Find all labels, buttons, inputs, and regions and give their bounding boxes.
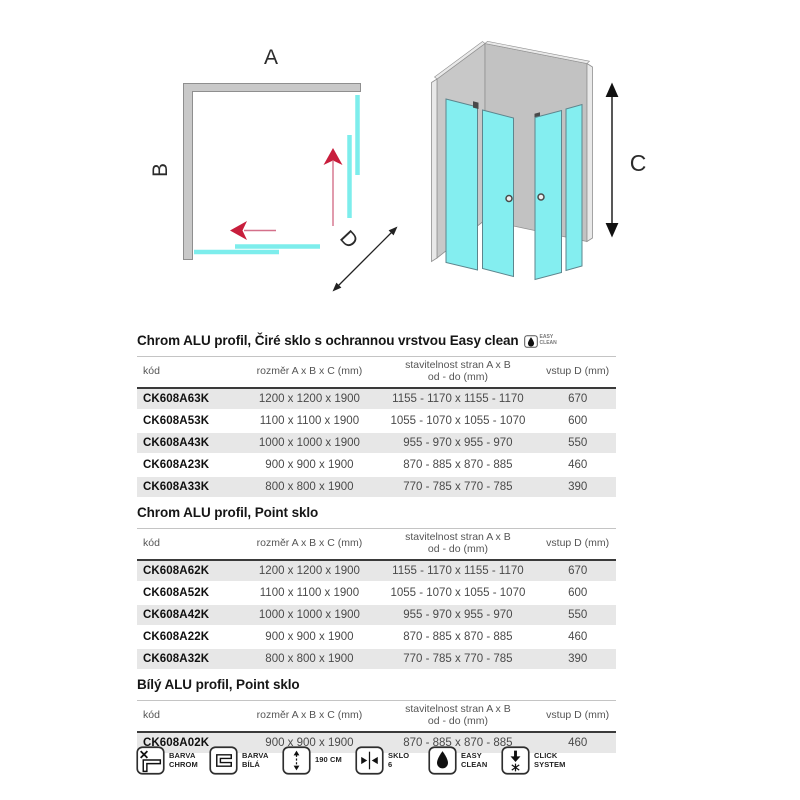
feature-easy-clean: EASYCLEAN (428, 746, 491, 775)
product-section-chrom-cire: Chrom ALU profil, Čiré sklo s ochrannou … (137, 333, 616, 499)
cell-kod: CK608A32K (137, 648, 242, 670)
cell-vstup: 460 (539, 626, 616, 648)
column-header-vstup: vstup D (mm) (539, 529, 616, 560)
cell-stavitelnost: 770 - 785 x 770 - 785 (376, 476, 539, 498)
cell-rozmer: 1200 x 1200 x 1900 (242, 560, 376, 582)
cell-rozmer: 800 x 800 x 1900 (242, 476, 376, 498)
easy-clean-badge-label: EASYCLEAN (540, 335, 557, 347)
feature-label: BARVABÍLÁ (242, 752, 272, 769)
cell-stavitelnost: 770 - 785 x 770 - 785 (376, 648, 539, 670)
table-row: CK608A32K800 x 800 x 1900770 - 785 x 770… (137, 648, 616, 670)
door-slide-arrow-up (324, 148, 343, 226)
cell-rozmer: 800 x 800 x 1900 (242, 648, 376, 670)
cell-vstup: 600 (539, 582, 616, 604)
product-section-chrom-point: Chrom ALU profil, Point sklo kódrozměr A… (137, 505, 616, 671)
cell-vstup: 460 (539, 454, 616, 476)
dim-label-d: D (335, 226, 362, 253)
cell-stavitelnost: 1055 - 1070 x 1055 - 1070 (376, 582, 539, 604)
barva-chrom-icon (136, 746, 165, 775)
cell-kod: CK608A33K (137, 476, 242, 498)
cell-vstup: 390 (539, 648, 616, 670)
dim-label-a: A (264, 46, 278, 69)
table-row: CK608A23K900 x 900 x 1900870 - 885 x 870… (137, 454, 616, 476)
column-header-stavitelnost: stavitelnost stran A x Bod - do (mm) (376, 529, 539, 560)
section-title-text: Chrom ALU profil, Point sklo (137, 505, 318, 521)
cell-vstup: 670 (539, 560, 616, 582)
cell-kod: CK608A53K (137, 410, 242, 432)
cell-kod: CK608A22K (137, 626, 242, 648)
cell-vstup: 550 (539, 432, 616, 454)
header-row: kódrozměr A x B x C (mm)stavitelnost str… (137, 357, 616, 388)
column-header-rozmer: rozměr A x B x C (mm) (242, 701, 376, 732)
feature-label: EASYCLEAN (461, 752, 491, 769)
door-slide-arrow-left (230, 221, 276, 240)
cell-kod: CK608A43K (137, 432, 242, 454)
cell-stavitelnost: 870 - 885 x 870 - 885 (376, 454, 539, 476)
door-knob-left (506, 196, 512, 202)
cell-rozmer: 900 x 900 x 1900 (242, 454, 376, 476)
table-row: CK608A43K1000 x 1000 x 1900955 - 970 x 9… (137, 432, 616, 454)
cell-rozmer: 1200 x 1200 x 1900 (242, 388, 376, 410)
click-system-icon (501, 746, 530, 775)
feature-label: BARVACHROM (169, 752, 199, 769)
cell-vstup: 670 (539, 388, 616, 410)
cell-kod: CK608A42K (137, 604, 242, 626)
table-row: CK608A42K1000 x 1000 x 1900955 - 970 x 9… (137, 604, 616, 626)
catalog-page: A B D (0, 0, 800, 800)
cell-stavitelnost: 1055 - 1070 x 1055 - 1070 (376, 410, 539, 432)
column-header-rozmer: rozměr A x B x C (mm) (242, 357, 376, 388)
wall-right-edge (587, 64, 593, 242)
glass-thickness-icon (355, 746, 384, 775)
dim-label-c: C (630, 150, 647, 176)
glass-panel-right-fixed (566, 105, 582, 271)
feature-label: CLICKSYSTEM (534, 752, 565, 769)
easy-clean-badge: EASYCLEAN (524, 335, 557, 348)
cell-stavitelnost: 955 - 970 x 955 - 970 (376, 432, 539, 454)
door-knob-right (538, 194, 544, 200)
column-header-rozmer: rozměr A x B x C (mm) (242, 529, 376, 560)
cell-kod: CK608A62K (137, 560, 242, 582)
column-header-kod: kód (137, 529, 242, 560)
cell-rozmer: 1100 x 1100 x 1900 (242, 582, 376, 604)
cell-rozmer: 1100 x 1100 x 1900 (242, 410, 376, 432)
cell-rozmer: 900 x 900 x 1900 (242, 626, 376, 648)
feature-icons-row: BARVACHROM BARVABÍLÁ 190 CM (136, 746, 575, 775)
column-header-stavitelnost: stavitelnost stran A x Bod - do (mm) (376, 701, 539, 732)
spec-table: kódrozměr A x B x C (mm)stavitelnost str… (137, 528, 616, 671)
cell-kod: CK608A52K (137, 582, 242, 604)
feature-click-system: CLICKSYSTEM (501, 746, 565, 775)
section-title: Chrom ALU profil, Point sklo (137, 505, 616, 521)
cell-stavitelnost: 1155 - 1170 x 1155 - 1170 (376, 388, 539, 410)
wall-left-edge (432, 79, 438, 262)
easy-clean-icon (428, 746, 457, 775)
section-title: Bílý ALU profil, Point sklo (137, 677, 616, 693)
height-arrow-icon (282, 746, 311, 775)
glass-panel-left-fixed (446, 99, 478, 270)
column-header-vstup: vstup D (mm) (539, 357, 616, 388)
cell-rozmer: 1000 x 1000 x 1900 (242, 432, 376, 454)
column-header-vstup: vstup D (mm) (539, 701, 616, 732)
dim-label-b: B (149, 163, 172, 177)
feature-label: 190 CM (315, 756, 345, 764)
height-dimension-arrow (606, 83, 619, 238)
column-header-kod: kód (137, 701, 242, 732)
section-title: Chrom ALU profil, Čiré sklo s ochrannou … (137, 333, 616, 349)
feature-sklo-6: SKLO6 (355, 746, 418, 775)
isometric-diagram: C (410, 30, 670, 290)
cell-vstup: 550 (539, 604, 616, 626)
section-title-text: Bílý ALU profil, Point sklo (137, 677, 300, 693)
spec-table: kódrozměr A x B x C (mm)stavitelnost str… (137, 356, 616, 499)
column-header-kod: kód (137, 357, 242, 388)
cell-kod: CK608A63K (137, 388, 242, 410)
header-row: kódrozměr A x B x C (mm)stavitelnost str… (137, 701, 616, 732)
cell-vstup: 390 (539, 476, 616, 498)
feature-height-190: 190 CM (282, 746, 345, 775)
easy-clean-drop-icon (524, 335, 538, 348)
wall-l-shape (184, 84, 361, 260)
top-view-diagram: A B D (140, 30, 420, 310)
glass-panel-left-door (483, 110, 514, 277)
tables-area: Chrom ALU profil, Čiré sklo s ochrannou … (137, 333, 616, 761)
table-row: CK608A52K1100 x 1100 x 19001055 - 1070 x… (137, 582, 616, 604)
header-row: kódrozměr A x B x C (mm)stavitelnost str… (137, 529, 616, 560)
product-section-bily-point: Bílý ALU profil, Point sklo kódrozměr A … (137, 677, 616, 755)
table-row: CK608A62K1200 x 1200 x 19001155 - 1170 x… (137, 560, 616, 582)
barva-bila-icon (209, 746, 238, 775)
column-header-stavitelnost: stavitelnost stran A x Bod - do (mm) (376, 357, 539, 388)
cell-stavitelnost: 955 - 970 x 955 - 970 (376, 604, 539, 626)
table-row: CK608A33K800 x 800 x 1900770 - 785 x 770… (137, 476, 616, 498)
table-row: CK608A22K900 x 900 x 1900870 - 885 x 870… (137, 626, 616, 648)
cell-vstup: 600 (539, 410, 616, 432)
feature-barva-chrom: BARVACHROM (136, 746, 199, 775)
cell-stavitelnost: 1155 - 1170 x 1155 - 1170 (376, 560, 539, 582)
cell-kod: CK608A23K (137, 454, 242, 476)
feature-barva-bila: BARVABÍLÁ (209, 746, 272, 775)
cell-rozmer: 1000 x 1000 x 1900 (242, 604, 376, 626)
feature-label: SKLO6 (388, 752, 418, 769)
cell-stavitelnost: 870 - 885 x 870 - 885 (376, 626, 539, 648)
section-title-text: Chrom ALU profil, Čiré sklo s ochrannou … (137, 333, 519, 349)
table-row: CK608A63K1200 x 1200 x 19001155 - 1170 x… (137, 388, 616, 410)
table-row: CK608A53K1100 x 1100 x 19001055 - 1070 x… (137, 410, 616, 432)
